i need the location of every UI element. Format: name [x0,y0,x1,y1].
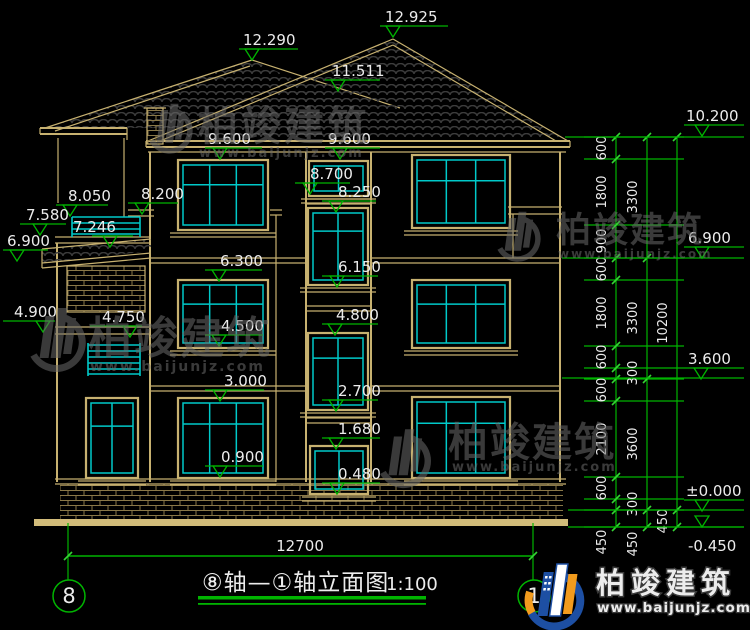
elevation-label-v6900L: 6.900 [7,232,50,250]
dim-label: 600 [595,136,610,161]
dim-label: 450 [595,530,610,555]
dim-label: 600 [595,378,610,403]
watermark-site: www.baijunjz.com [452,460,617,475]
elevation-label-v4800: 4.800 [336,306,379,324]
w-f1-porch [78,398,146,485]
watermark-logo-icon [383,429,428,485]
dim-label: 300 [626,492,641,517]
elevation-marker-v1680: 1.680 [322,420,381,449]
w-f2-right [404,280,518,355]
title-underline-2 [198,603,426,605]
watermark-brand: 柏竣建筑 [556,210,704,251]
axis-left-label: 8 [62,584,75,608]
watermark-site: www.baijunjz.com [558,247,713,261]
footer-logo-brand: 柏竣建筑 [596,566,736,600]
watermark-brand: 柏竣建筑 [88,313,272,364]
dim-label: 3600 [626,427,641,460]
elevation-marker-v7580: 7.580 [20,206,69,235]
watermark-4: 柏竣建筑 www.baijunjz.com [383,420,617,485]
elevation-label-v8250: 8.250 [338,183,381,201]
elevation-marker-v0000: ±0.000 [684,482,744,511]
dim-label: 10200 [656,302,671,343]
elevation-marker-v6150: 6.150 [322,258,381,287]
drawing-title: ⑧轴—①轴立面图 1:100 [198,570,438,605]
dim-label: 600 [595,345,610,370]
elevation-label-v12925: 12.925 [385,8,438,26]
elevation-marker-v10200: 10.200 [684,107,744,136]
elevation-label-v8200: 8.200 [141,185,184,203]
elevation-label-v8700: 8.700 [310,165,353,183]
w-f3-left [170,160,276,237]
ground-line [34,519,568,526]
dimension-chains: 6001800900600180060060021006003003003300… [584,133,684,556]
dim-label: 300 [626,361,641,386]
dim-label: 1800 [595,175,610,208]
elevation-marker-v12290: 12.290 [239,31,298,60]
title-scale: 1:100 [386,574,438,595]
elevation-label-v7580: 7.580 [26,206,69,224]
elevation-label-v0000: ±0.000 [686,482,742,500]
cad-elevation-canvas: 12.92512.29011.5119.6009.6008.7008.2508.… [0,0,750,630]
dim-label: 600 [595,476,610,501]
elevation-label-v3600: 3.600 [688,350,731,368]
dim-label: 1800 [595,296,610,329]
elevation-marker-v3600: 3.600 [684,350,744,379]
elevation-label-v7246: 7.246 [73,218,116,236]
watermark-site: www.baijunjz.com [90,359,265,375]
elevation-label-v0480: 0.480 [338,465,381,483]
w-f3-right [404,155,518,235]
elevation-label-v1680: 1.680 [338,420,381,438]
dim-label: 3300 [626,301,641,334]
elevation-label-v10200: 10.200 [686,107,739,125]
elevation-label-v0900: 0.900 [221,448,264,466]
elevation-label-v8050: 8.050 [68,187,111,205]
watermark-brand: 柏竣建筑 [198,104,370,150]
w-f2-tower [300,208,376,292]
watermark-2: 柏竣建筑 www.baijunjz.com [34,308,273,375]
total-width-label: 12700 [276,537,324,555]
w-f1-tower [300,333,376,417]
elevation-label-v6300: 6.300 [220,252,263,270]
footer-logo: 柏竣建筑 www.baijunjz.com [529,564,750,627]
dim-label: 450 [656,509,671,534]
watermark-site: www.baijunjz.com [199,146,364,161]
watermark-3: 柏竣建筑 www.baijunjz.com [500,210,713,261]
elevation-label-v6150: 6.150 [338,258,381,276]
elevation-label-vm0450: -0.450 [688,537,736,555]
axis-bubble-left: 8 [53,580,85,612]
elevation-marker-v6300: 6.300 [205,252,263,281]
brick-panel [67,266,145,312]
dim-label: 3300 [626,180,641,213]
elevation-marker-v2700: 2.700 [322,382,381,411]
elevation-label-v12290: 12.290 [243,31,296,49]
elevation-label-v2700: 2.700 [338,382,381,400]
elevation-marker-v12925: 12.925 [380,8,448,37]
dim-label: 450 [626,532,641,557]
elevation-marker-vm0450: -0.450 [684,516,744,555]
title-text: ⑧轴—①轴立面图 [202,570,389,596]
footer-logo-site: www.baijunjz.com [597,600,750,616]
title-underline [198,596,426,600]
elevation-label-v11511: 11.511 [332,62,385,80]
